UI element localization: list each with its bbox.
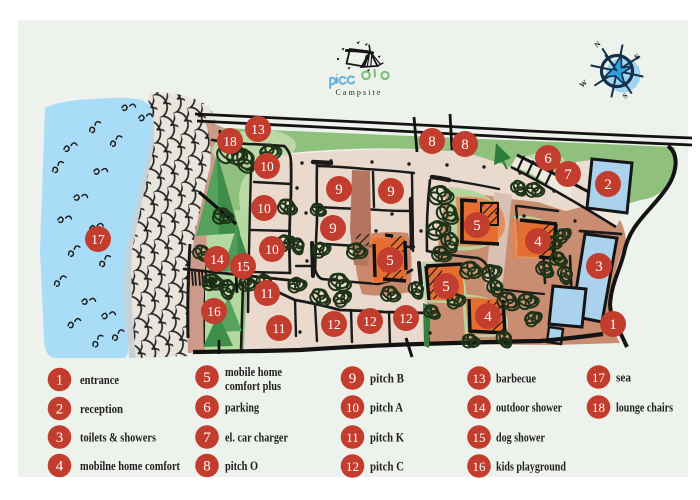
- svg-text:barbecue: barbecue: [496, 372, 536, 386]
- svg-text:1: 1: [609, 317, 617, 333]
- svg-text:toilets & showers: toilets & showers: [80, 431, 156, 445]
- svg-text:12: 12: [399, 311, 413, 326]
- svg-text:4: 4: [534, 234, 542, 250]
- svg-text:7: 7: [564, 167, 572, 183]
- svg-text:outdoor shower: outdoor shower: [496, 401, 562, 415]
- svg-text:5: 5: [203, 370, 211, 386]
- svg-text:17: 17: [91, 232, 105, 247]
- svg-text:comfort plus: comfort plus: [225, 379, 281, 393]
- svg-text:pitch B: pitch B: [370, 372, 404, 386]
- svg-text:16: 16: [207, 304, 221, 319]
- svg-text:13: 13: [251, 122, 265, 137]
- svg-text:4: 4: [484, 309, 492, 325]
- svg-text:9: 9: [335, 182, 343, 198]
- svg-text:dog shower: dog shower: [496, 431, 545, 445]
- svg-text:5: 5: [473, 218, 481, 234]
- svg-text:8: 8: [428, 134, 436, 150]
- svg-text:8: 8: [203, 459, 211, 475]
- svg-text:sea: sea: [616, 371, 632, 385]
- svg-text:mobile home: mobile home: [225, 365, 282, 379]
- svg-text:10: 10: [260, 159, 274, 174]
- svg-text:15: 15: [473, 430, 486, 445]
- svg-text:3: 3: [595, 259, 603, 275]
- svg-text:10: 10: [346, 400, 359, 415]
- svg-text:17: 17: [592, 370, 606, 385]
- svg-text:16: 16: [473, 459, 487, 474]
- svg-text:18: 18: [592, 400, 605, 415]
- svg-text:13: 13: [473, 371, 486, 386]
- svg-text:pitch A: pitch A: [370, 401, 403, 415]
- svg-text:5: 5: [442, 279, 450, 295]
- svg-text:4: 4: [56, 459, 64, 475]
- svg-text:10: 10: [257, 201, 271, 216]
- svg-text:mobilne home comfort: mobilne home comfort: [80, 459, 181, 473]
- svg-text:2: 2: [604, 177, 612, 193]
- svg-text:pitch O: pitch O: [225, 459, 258, 473]
- svg-text:Campsite: Campsite: [335, 88, 382, 97]
- svg-text:12: 12: [346, 459, 359, 474]
- svg-text:1: 1: [56, 373, 64, 389]
- svg-text:8: 8: [461, 137, 469, 153]
- svg-text:14: 14: [473, 400, 487, 415]
- svg-text:2: 2: [56, 402, 64, 418]
- svg-text:12: 12: [327, 317, 341, 332]
- svg-text:11: 11: [261, 286, 274, 301]
- svg-text:11: 11: [273, 321, 286, 336]
- svg-text:9: 9: [329, 221, 337, 237]
- svg-text:parking: parking: [225, 401, 260, 415]
- svg-text:3: 3: [56, 430, 64, 446]
- svg-text:7: 7: [203, 430, 211, 446]
- svg-text:entrance: entrance: [80, 373, 119, 387]
- svg-text:14: 14: [210, 252, 224, 267]
- svg-text:pitch C: pitch C: [370, 460, 404, 474]
- svg-text:lounge chairs: lounge chairs: [616, 401, 673, 415]
- svg-text:6: 6: [544, 151, 552, 167]
- svg-text:5: 5: [386, 253, 394, 269]
- svg-text:9: 9: [349, 371, 357, 387]
- svg-text:12: 12: [363, 314, 377, 329]
- svg-text:9: 9: [387, 184, 395, 200]
- svg-text:15: 15: [236, 259, 250, 274]
- svg-text:pitch K: pitch K: [370, 431, 404, 445]
- svg-text:6: 6: [203, 400, 211, 416]
- svg-text:10: 10: [265, 242, 279, 257]
- svg-text:11: 11: [346, 430, 359, 445]
- svg-text:18: 18: [223, 134, 237, 149]
- svg-text:el. car charger: el. car charger: [225, 431, 288, 445]
- svg-text:reception: reception: [80, 402, 123, 416]
- svg-text:kids playground: kids playground: [496, 460, 566, 474]
